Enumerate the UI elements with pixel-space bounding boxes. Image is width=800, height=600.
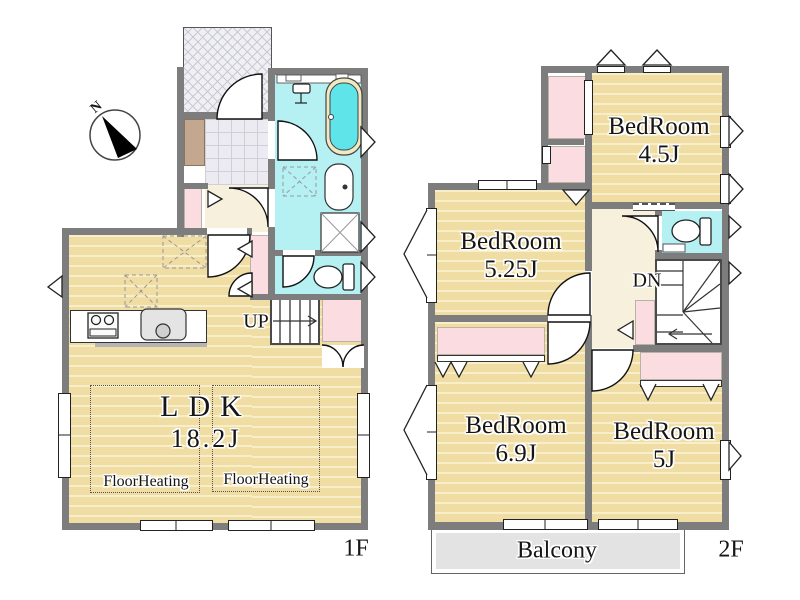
window [426,385,437,480]
door-opening [283,250,315,256]
balcony-label: Balcony [517,538,597,565]
window [478,180,537,190]
ldk-size: 18.2J [160,424,252,454]
window [597,66,625,73]
floor-heating-label-right: FloorHeating [223,471,308,489]
window [720,116,731,148]
entrance-porch [183,27,272,119]
wall [541,66,729,73]
wall [541,66,548,183]
washroom [275,162,361,256]
floor1-label: 1F [343,536,368,563]
wall [62,228,69,530]
entry-step [184,119,205,166]
closet-door-track [437,355,545,362]
window [720,174,731,204]
hallway-1f [205,185,269,232]
window [228,520,315,531]
wall [268,68,275,300]
entry-closet [184,188,202,230]
wall [184,112,218,119]
wall [655,253,729,259]
door-opening [218,112,260,119]
window [643,66,671,73]
staircase-down [655,259,722,345]
wall [548,139,584,145]
wall [62,523,368,530]
wall [268,68,368,75]
window [140,520,213,531]
bedroom-69-label: BedRoom 6.9J [465,412,566,468]
door-opening [655,216,662,250]
compass-north-label: N [88,99,106,118]
floorplan-canvas: N LDK 18.2J FloorHeating FloorHeating UP… [0,0,800,600]
ldk-name: LDK [160,390,252,424]
door-opening [268,189,275,227]
door-opening [585,271,592,315]
wall-notch [542,146,551,164]
window [357,393,370,478]
casement-window-symbols [404,210,427,475]
wall [633,345,729,352]
entry-hall-tile [205,119,272,185]
hall-closet-2f [635,300,655,345]
door-opening [207,228,247,235]
wall [260,112,268,119]
kitchen-counter [70,310,207,343]
bedroom-45-label: BedRoom 4.5J [608,113,709,169]
wall [250,294,368,300]
door-opening [268,121,275,159]
closet-bedroom-6-9 [437,327,545,355]
window [58,393,71,478]
wall [177,67,184,237]
window [426,208,437,303]
stairs-closet-1f [322,298,362,342]
door-opening [548,315,590,322]
wall [177,183,208,189]
stairs-up-label: UP [243,311,269,334]
kitchen-counter-shadow [95,343,207,347]
staircase-up [270,298,320,345]
floor-heating-label-left: FloorHeating [103,473,188,491]
hall-closet-1f [250,235,270,300]
window [598,519,678,530]
window [720,440,731,480]
bedroom-5-label: BedRoom 5J [613,418,714,474]
stairs-down-label: DN [633,270,662,293]
bathroom [275,75,361,162]
window [503,519,588,530]
closet-slider-door [584,80,593,135]
ldk-label: LDK 18.2J [160,390,252,454]
closet-door-track [640,380,722,387]
corridor-1f [207,235,250,296]
toilet-room-2f [662,211,722,253]
closet-bedroom-5 [640,352,722,380]
wall [585,209,592,522]
open-doorway [633,203,675,211]
floor2-label: 2F [718,537,743,564]
bedroom-525-label: BedRoom 5.25J [460,228,561,284]
